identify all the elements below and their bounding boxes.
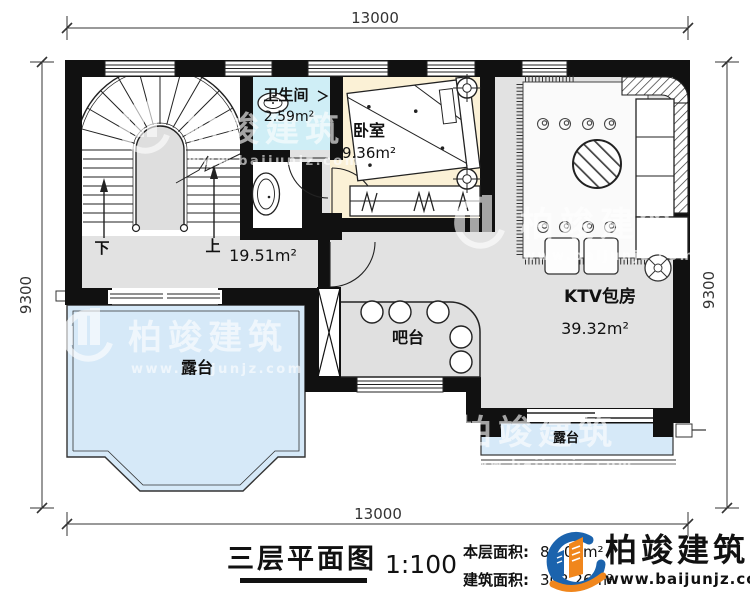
window [308, 61, 388, 76]
hall-area: 19.51m² [229, 246, 297, 265]
washbasin-icon [253, 173, 280, 215]
stair-down-label: 下 [94, 239, 109, 257]
window [105, 61, 175, 76]
dim-bottom-value: 13000 [354, 505, 402, 523]
stair-newel [181, 225, 188, 232]
vent-shaft [318, 288, 340, 377]
svg-text:柏竣建筑: 柏竣建筑 [128, 318, 288, 358]
bar-stool [389, 301, 411, 323]
floor-plan-page: 柏竣建筑 www.baijunjz.com 柏竣建筑 www.baijunjz.… [0, 0, 750, 600]
bathroom-label: 卫生间 [263, 86, 308, 104]
round-table [573, 140, 621, 188]
ktv-label: KTV包房 [564, 286, 636, 307]
bar-label: 吧台 [392, 328, 424, 347]
bedroom-area: 9.36m² [342, 144, 396, 162]
plan-scale: 1:100 [385, 550, 457, 579]
bar-stool [450, 351, 472, 373]
ktv-area: 39.32m² [561, 319, 629, 338]
svg-text:www.baijunjz.com: www.baijunjz.com [523, 249, 696, 264]
svg-text:www.baijunjz.com: www.baijunjz.com [461, 457, 634, 472]
window [225, 61, 272, 76]
bar-stool [361, 301, 383, 323]
terrace-fixture [676, 424, 692, 437]
bar-stool [427, 301, 449, 323]
terrace-door-threshold [108, 290, 222, 304]
dim-right-value: 9300 [700, 271, 718, 309]
window [357, 377, 443, 392]
svg-text:www.baijunjz.com: www.baijunjz.com [131, 362, 304, 377]
plan-title: 三层平面图 [227, 544, 377, 575]
logo-building-orange-icon [569, 537, 583, 578]
company-name: 柏竣建筑 [605, 531, 749, 569]
dim-left-value: 9300 [17, 276, 35, 314]
bedroom-label: 卧室 [353, 121, 385, 140]
stair-newel [133, 225, 140, 232]
window [522, 61, 567, 76]
svg-text:柏竣建筑: 柏竣建筑 [458, 413, 618, 453]
logo-building-blue-icon [555, 550, 564, 578]
stair-up-label: 上 [205, 237, 220, 255]
terrace-right-label: 露台 [553, 430, 579, 446]
floor-plan-drawing: 柏竣建筑 www.baijunjz.com 柏竣建筑 www.baijunjz.… [0, 0, 750, 600]
dim-top-value: 13000 [351, 9, 399, 27]
svg-text:www.baijunjz.com: www.baijunjz.com [188, 154, 361, 169]
terrace-left-label: 露台 [181, 358, 213, 377]
bar-stool [450, 326, 472, 348]
window [427, 61, 475, 76]
bathroom-area: 2.59m² [264, 109, 314, 125]
sofa-seat [636, 99, 674, 217]
svg-text:柏竣建筑: 柏竣建筑 [520, 205, 680, 245]
company-website: www.baijunjz.com [605, 570, 750, 588]
title-underline [240, 578, 367, 583]
